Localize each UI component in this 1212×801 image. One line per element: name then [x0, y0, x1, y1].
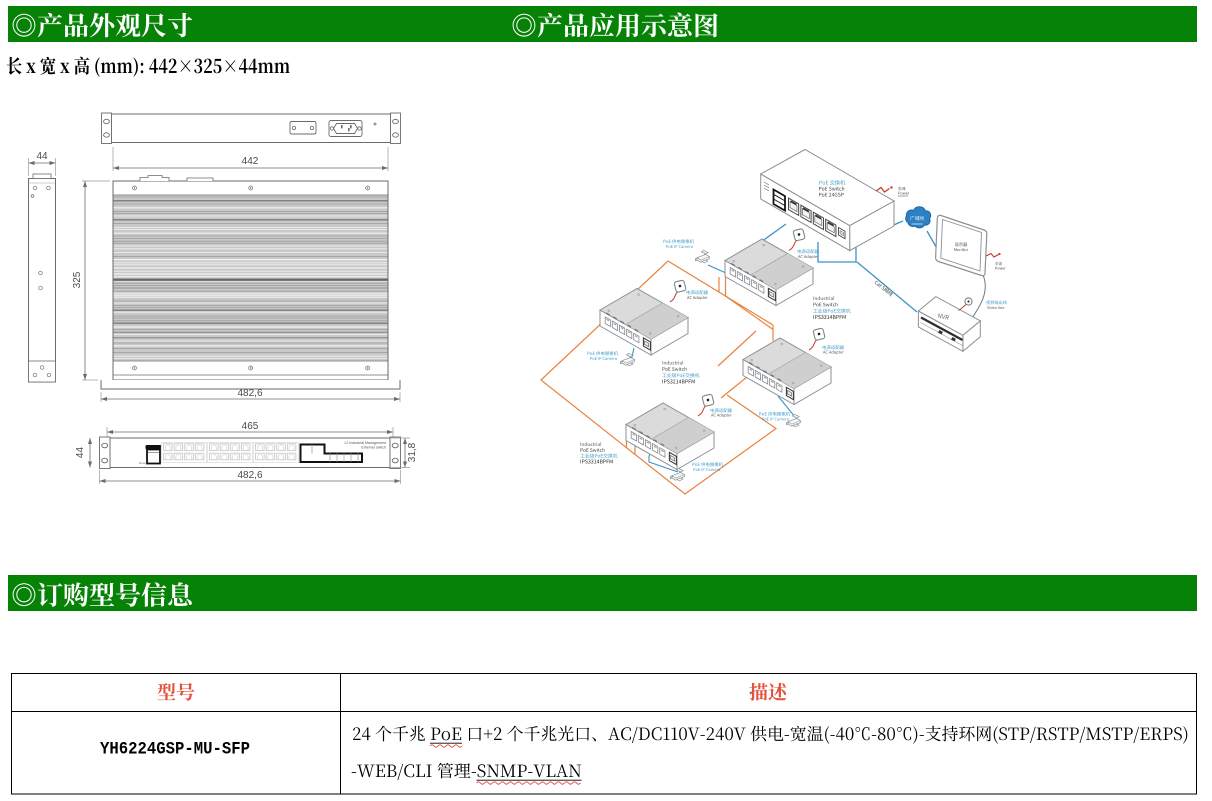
- svg-text:YH6224GSP-MU-SFP: YH6224GSP-MU-SFP: [100, 740, 250, 760]
